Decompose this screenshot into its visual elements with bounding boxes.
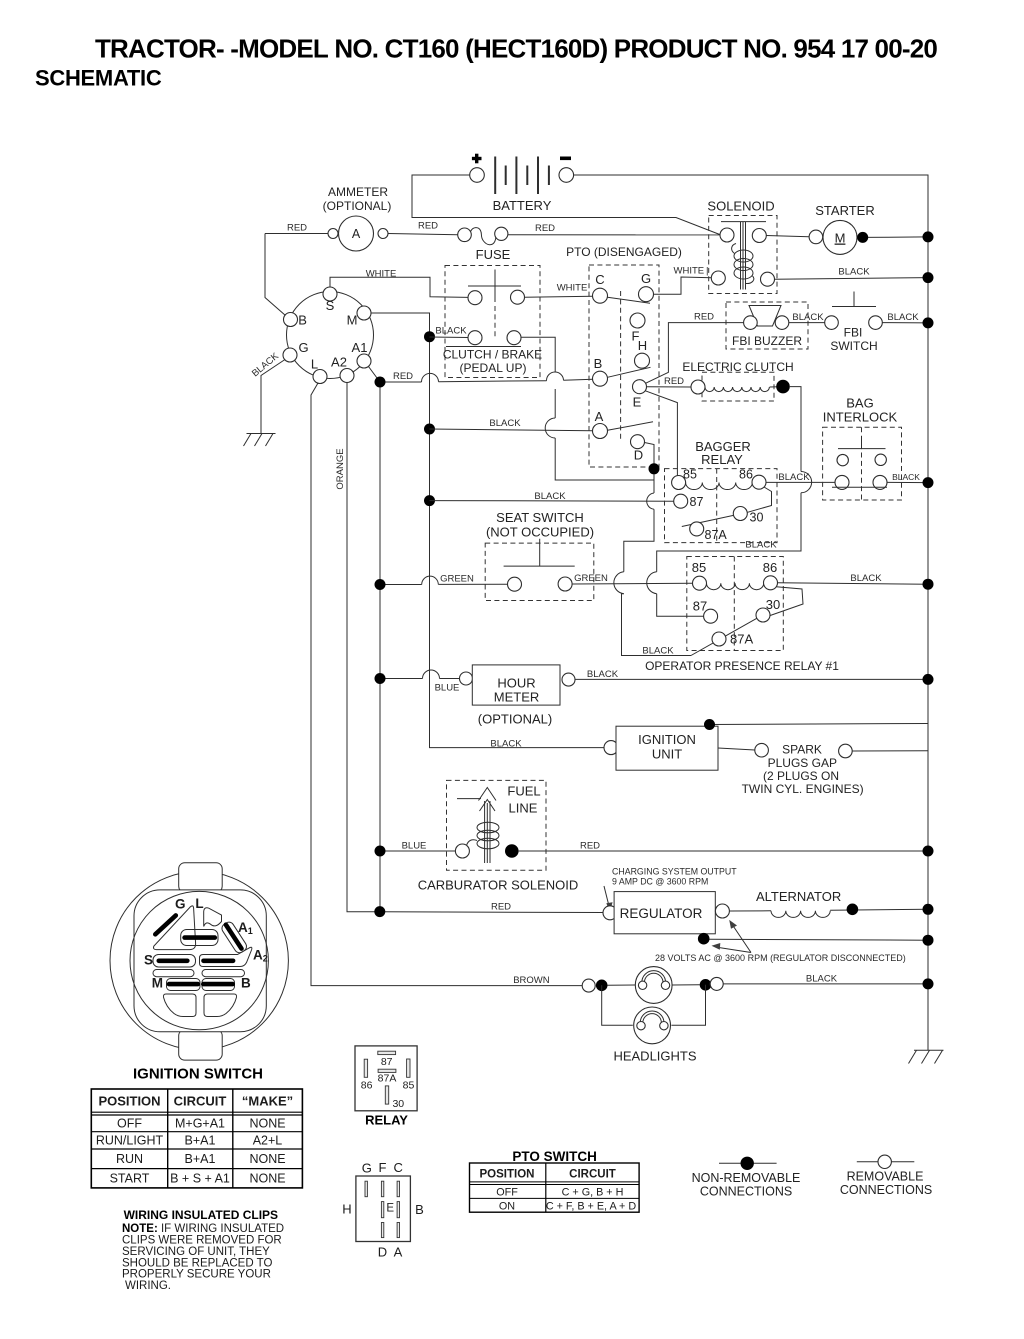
svg-text:NONE: NONE — [249, 1117, 285, 1131]
svg-text:BLACK: BLACK — [806, 973, 838, 984]
svg-text:C: C — [595, 272, 604, 287]
svg-text:LINE: LINE — [509, 800, 538, 815]
svg-text:NOTE: IF WIRING INSULATED: NOTE: IF WIRING INSULATED — [122, 1223, 284, 1235]
svg-text:RED: RED — [393, 371, 413, 382]
svg-text:ORANGE: ORANGE — [335, 448, 346, 489]
svg-text:INTERLOCK: INTERLOCK — [823, 410, 898, 425]
svg-text:RED: RED — [418, 221, 438, 232]
svg-text:SHOULD BE REPLACED TO: SHOULD BE REPLACED TO — [122, 1257, 272, 1269]
svg-text:85: 85 — [683, 468, 697, 482]
svg-text:RELAY: RELAY — [365, 1113, 408, 1128]
svg-text:RED: RED — [664, 376, 684, 387]
svg-text:BLACK: BLACK — [778, 472, 810, 483]
svg-text:TRACTOR- -MODEL NO. CT160 (HEC: TRACTOR- -MODEL NO. CT160 (HECT160D) PRO… — [95, 34, 937, 64]
svg-text:CLIPS WERE REMOVED FOR: CLIPS WERE REMOVED FOR — [122, 1235, 282, 1247]
svg-text:FUSE: FUSE — [476, 247, 511, 262]
svg-text:B: B — [241, 975, 251, 990]
svg-text:BLACK: BLACK — [489, 418, 521, 429]
svg-text:G: G — [175, 897, 186, 912]
svg-text:OFF: OFF — [496, 1186, 518, 1198]
svg-text:WHITE: WHITE — [557, 283, 588, 294]
svg-text:WHITE: WHITE — [366, 268, 397, 279]
svg-text:BLACK: BLACK — [490, 739, 522, 750]
svg-text:WIRING.: WIRING. — [125, 1280, 171, 1292]
svg-text:RED: RED — [535, 223, 555, 234]
svg-text:BLUE: BLUE — [402, 841, 427, 852]
svg-text:SCHEMATIC: SCHEMATIC — [35, 66, 162, 91]
svg-text:9 AMP DC @ 3600 RPM: 9 AMP DC @ 3600 RPM — [612, 877, 708, 887]
svg-text:BLACK: BLACK — [892, 472, 920, 482]
svg-text:(PEDAL UP): (PEDAL UP) — [460, 361, 527, 375]
svg-text:PLUGS GAP: PLUGS GAP — [768, 756, 837, 770]
svg-text:START: START — [110, 1172, 150, 1186]
svg-text:B: B — [415, 1202, 424, 1217]
svg-text:“MAKE”: “MAKE” — [242, 1094, 293, 1109]
svg-text:UNIT: UNIT — [652, 747, 682, 762]
svg-text:ELECTRIC CLUTCH: ELECTRIC CLUTCH — [682, 360, 793, 374]
svg-text:B+A1: B+A1 — [185, 1152, 216, 1166]
svg-text:SOLENOID: SOLENOID — [707, 199, 774, 214]
svg-text:SPARK: SPARK — [782, 743, 822, 757]
svg-text:BLACK: BLACK — [435, 326, 467, 337]
svg-text:GREEN: GREEN — [574, 573, 608, 584]
svg-text:NON-REMOVABLE: NON-REMOVABLE — [692, 1171, 801, 1185]
svg-text:BLACK: BLACK — [534, 491, 566, 502]
svg-text:28 VOLTS AC @ 3600 RPM (REGULA: 28 VOLTS AC @ 3600 RPM (REGULATOR DISCON… — [655, 953, 906, 963]
svg-text:B + S + A1: B + S + A1 — [170, 1172, 230, 1186]
svg-text:A: A — [394, 1245, 403, 1260]
svg-text:BLACK: BLACK — [642, 645, 674, 656]
svg-text:A1: A1 — [352, 340, 368, 355]
svg-text:RED: RED — [287, 223, 307, 234]
svg-text:G: G — [641, 271, 651, 286]
svg-text:BLACK: BLACK — [887, 312, 919, 323]
svg-text:NONE: NONE — [249, 1152, 285, 1166]
svg-text:M: M — [152, 975, 163, 990]
svg-text:BLUE: BLUE — [435, 683, 460, 694]
svg-text:85: 85 — [692, 560, 706, 575]
svg-text:(OPTIONAL): (OPTIONAL) — [323, 199, 392, 213]
svg-text:FUEL: FUEL — [507, 784, 540, 799]
svg-text:A2+L: A2+L — [253, 1134, 283, 1148]
svg-text:C: C — [394, 1160, 403, 1175]
svg-text:BATTERY: BATTERY — [493, 198, 552, 213]
svg-text:87A: 87A — [705, 528, 728, 542]
svg-text:30: 30 — [750, 511, 764, 525]
svg-text:REGULATOR: REGULATOR — [620, 906, 703, 921]
svg-text:ALTERNATOR: ALTERNATOR — [756, 889, 841, 904]
svg-text:REMOVABLE: REMOVABLE — [847, 1169, 924, 1183]
svg-text:GREEN: GREEN — [440, 574, 474, 585]
svg-text:D: D — [378, 1245, 387, 1260]
svg-text:ON: ON — [499, 1200, 515, 1212]
svg-text:HOUR: HOUR — [497, 676, 535, 691]
svg-text:C + F, B + E, A + D: C + F, B + E, A + D — [546, 1200, 637, 1212]
svg-text:S: S — [326, 298, 335, 313]
svg-text:FBI: FBI — [844, 326, 863, 340]
svg-text:M: M — [835, 231, 846, 246]
svg-text:CIRCUIT: CIRCUIT — [174, 1094, 227, 1109]
svg-text:BLACK: BLACK — [792, 312, 824, 323]
svg-text:G: G — [298, 340, 308, 355]
svg-text:87A: 87A — [730, 632, 753, 647]
svg-text:F: F — [379, 1160, 387, 1175]
svg-text:H: H — [638, 338, 647, 353]
svg-text:B+A1: B+A1 — [185, 1134, 216, 1148]
svg-text:RELAY: RELAY — [701, 452, 743, 467]
svg-text:RED: RED — [580, 841, 600, 852]
svg-text:85: 85 — [403, 1080, 415, 1092]
svg-text:AMMETER: AMMETER — [328, 185, 388, 199]
svg-text:L: L — [195, 896, 203, 911]
svg-text:OPERATOR PRESENCE RELAY #1: OPERATOR PRESENCE RELAY #1 — [645, 659, 839, 673]
svg-text:BLACK: BLACK — [745, 540, 777, 551]
svg-text:(NOT OCCUPIED): (NOT OCCUPIED) — [486, 525, 594, 540]
svg-text:G: G — [362, 1161, 372, 1176]
svg-text:SERVICING OF UNIT, THEY: SERVICING OF UNIT, THEY — [122, 1246, 270, 1258]
svg-text:CARBURATOR SOLENOID: CARBURATOR SOLENOID — [418, 878, 579, 893]
svg-text:IGNITION: IGNITION — [638, 732, 696, 747]
svg-text:M+G+A1: M+G+A1 — [175, 1117, 225, 1131]
svg-text:CONNECTIONS: CONNECTIONS — [700, 1184, 792, 1198]
svg-text:BLACK: BLACK — [850, 573, 882, 584]
svg-text:(2 PLUGS ON: (2 PLUGS ON — [763, 769, 839, 783]
svg-text:B: B — [594, 356, 603, 371]
svg-text:CHARGING SYSTEM OUTPUT: CHARGING SYSTEM OUTPUT — [612, 867, 737, 877]
svg-text:POSITION: POSITION — [480, 1169, 535, 1181]
svg-text:87: 87 — [690, 495, 704, 509]
svg-text:87: 87 — [693, 599, 707, 614]
svg-text:87A: 87A — [378, 1073, 397, 1085]
svg-text:BLACK: BLACK — [587, 669, 619, 680]
svg-text:H: H — [342, 1202, 351, 1217]
svg-text:D: D — [634, 448, 643, 463]
svg-text:CONNECTIONS: CONNECTIONS — [840, 1183, 932, 1197]
svg-text:WHITE |: WHITE | — [674, 266, 709, 277]
svg-text:RUN: RUN — [116, 1152, 143, 1166]
svg-text:METER: METER — [494, 690, 540, 705]
svg-text:BAG: BAG — [846, 396, 873, 411]
svg-text:SWITCH: SWITCH — [830, 339, 877, 353]
svg-text:E: E — [633, 395, 642, 410]
svg-text:STARTER: STARTER — [815, 203, 874, 218]
svg-text:30: 30 — [392, 1098, 404, 1110]
svg-text:PTO (DISENGAGED): PTO (DISENGAGED) — [566, 245, 682, 259]
svg-text:RUN/LIGHT: RUN/LIGHT — [96, 1134, 164, 1148]
svg-text:86: 86 — [739, 468, 753, 482]
svg-text:PTO SWITCH: PTO SWITCH — [512, 1149, 597, 1164]
svg-text:86: 86 — [763, 560, 777, 575]
svg-text:PROPERLY SECURE YOUR: PROPERLY SECURE YOUR — [122, 1269, 271, 1281]
svg-text:CIRCUIT: CIRCUIT — [569, 1169, 616, 1181]
svg-text:S: S — [144, 953, 153, 968]
svg-text:NONE: NONE — [249, 1172, 285, 1186]
svg-text:WIRING INSULATED CLIPS: WIRING INSULATED CLIPS — [124, 1208, 278, 1222]
svg-text:87: 87 — [381, 1056, 393, 1068]
svg-text:BROWN: BROWN — [513, 975, 550, 986]
svg-text:RED: RED — [491, 902, 511, 913]
svg-text:IGNITION SWITCH: IGNITION SWITCH — [133, 1066, 263, 1083]
svg-text:B: B — [298, 313, 307, 328]
svg-text:POSITION: POSITION — [98, 1094, 160, 1109]
svg-text:A2: A2 — [331, 355, 347, 370]
svg-text:(OPTIONAL): (OPTIONAL) — [478, 712, 552, 727]
svg-text:L: L — [311, 357, 318, 372]
svg-text:E: E — [386, 1203, 394, 1215]
svg-text:A: A — [595, 409, 604, 424]
svg-text:M: M — [347, 313, 358, 328]
svg-text:OFF: OFF — [117, 1117, 142, 1131]
svg-text:TWIN CYL. ENGINES): TWIN CYL. ENGINES) — [742, 782, 864, 796]
svg-text:CLUTCH / BRAKE: CLUTCH / BRAKE — [443, 348, 542, 362]
svg-text:HEADLIGHTS: HEADLIGHTS — [613, 1049, 696, 1064]
svg-text:RED: RED — [694, 312, 714, 323]
svg-text:86: 86 — [361, 1080, 373, 1092]
svg-text:BLACK: BLACK — [838, 267, 870, 278]
svg-text:FBI BUZZER: FBI BUZZER — [732, 334, 802, 348]
svg-text:A: A — [352, 227, 361, 241]
svg-text:SEAT SWITCH: SEAT SWITCH — [496, 510, 584, 525]
svg-text:30: 30 — [766, 597, 780, 612]
svg-text:C + G, B + H: C + G, B + H — [562, 1186, 624, 1198]
